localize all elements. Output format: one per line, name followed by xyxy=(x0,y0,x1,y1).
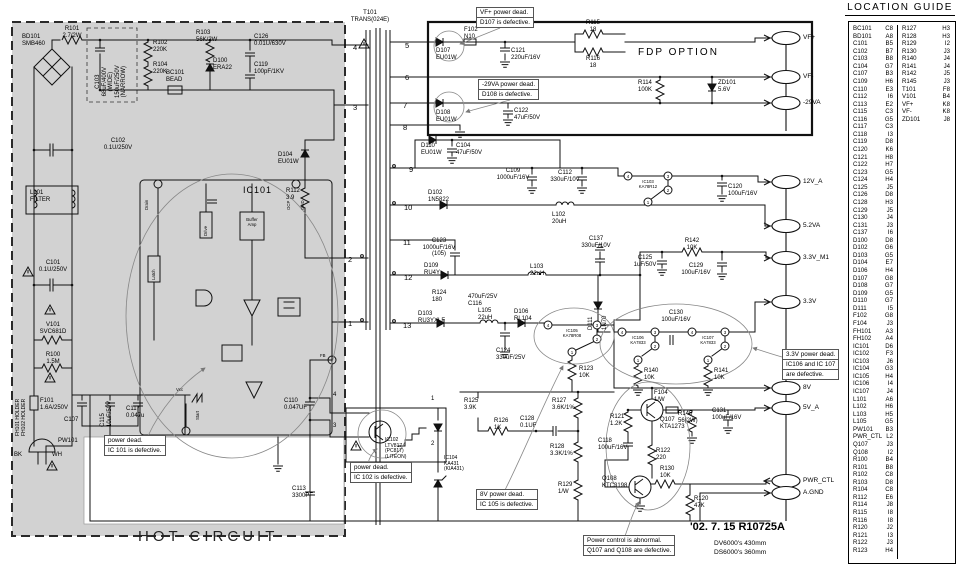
location-guide-row: C126D8 xyxy=(849,191,897,199)
label-r126: R126 1K xyxy=(494,418,508,431)
label-d106: D106 RL104 xyxy=(514,309,532,322)
ref-designator: R116 xyxy=(853,517,867,525)
location-guide-row: C116G5 xyxy=(849,116,897,124)
ref-designator: C103 xyxy=(853,55,868,63)
label-r101: R101 2.7/2W xyxy=(58,26,86,39)
location-guide-row: IC106I4 xyxy=(849,380,897,388)
callout-ic102: power dead.IC 102 is defective. xyxy=(350,463,412,483)
ref-designator: D110 xyxy=(853,297,867,305)
label-c116: 470uF/25V C116 xyxy=(468,294,497,307)
label-ic101-ocp: OCP xyxy=(287,201,292,210)
location-guide-row: C118I3 xyxy=(849,131,897,139)
location-guide-row: C102B7 xyxy=(849,48,897,56)
label-r130: R130 10K xyxy=(660,466,674,479)
t101-pin-6: 6 xyxy=(405,73,409,82)
grid-location: I3 xyxy=(888,532,893,540)
grid-location: J4 xyxy=(887,388,893,396)
ref-designator: D102 xyxy=(853,244,868,252)
ref-designator: C120 xyxy=(853,146,868,154)
grid-location: D8 xyxy=(885,479,893,487)
location-guide-row: C120K6 xyxy=(849,146,897,154)
ref-designator: L103 xyxy=(853,411,867,419)
hot-circuit-title: HOT CIRCUIT xyxy=(138,534,278,541)
location-guide-row: D103G5 xyxy=(849,252,897,260)
label-c110: C110 0.047UF xyxy=(284,398,307,411)
grid-location: B3 xyxy=(886,70,893,78)
label-c129: C129 100uF/16V xyxy=(678,263,714,276)
ref-designator: R130 xyxy=(902,48,917,56)
ref-designator: VF+ xyxy=(902,101,913,109)
location-guide-row: R115I8 xyxy=(849,509,897,517)
callout-line: D108 is defective. xyxy=(478,89,539,100)
label-r124: R124 180 xyxy=(432,290,446,303)
output-5v-a: 5V_A xyxy=(803,404,819,411)
grid-location: J3 xyxy=(887,320,893,328)
location-guide-row: R145J3 xyxy=(898,78,954,86)
ref-designator: R140 xyxy=(902,55,917,63)
grid-location: B4 xyxy=(886,456,893,464)
location-guide-row: D109G5 xyxy=(849,290,897,298)
grid-location: L2 xyxy=(886,433,893,441)
location-guide-col1: BC101C8BD101A8C101B5C102B7C103B8C104G7C1… xyxy=(849,25,897,559)
grid-location: G5 xyxy=(885,252,893,260)
grid-location: J4 xyxy=(944,63,950,71)
t101-pin-8: 8 xyxy=(403,123,407,132)
label-d107: D107 EU01W xyxy=(436,48,457,61)
callout-line: IC 101 is defective. xyxy=(104,445,166,456)
grid-location: C8 xyxy=(885,471,893,479)
ref-designator: R129 xyxy=(902,40,917,48)
grid-location: J4 xyxy=(887,214,893,222)
location-guide-row: C115C3 xyxy=(849,108,897,116)
ref-designator: T101 xyxy=(902,86,916,94)
location-guide-row: C123G5 xyxy=(849,169,897,177)
output-pwr-ctl: PWR_CTL xyxy=(803,477,834,484)
t101-pin-4: 4 xyxy=(353,43,357,52)
ref-designator: R102 xyxy=(853,471,868,479)
location-guide-row: R100B4 xyxy=(849,456,897,464)
label-r116: R116 18 xyxy=(582,56,604,69)
label-r129: R129 1/W xyxy=(558,482,572,495)
label-c101: C101 0.1U/250V xyxy=(30,260,76,273)
ref-designator: F102 xyxy=(853,312,867,320)
location-guide-row: D108G7 xyxy=(849,282,897,290)
location-guide-row: D111I5 xyxy=(849,305,897,313)
grid-location: A8 xyxy=(886,33,893,41)
output-3-3v: 3.3V xyxy=(803,298,816,305)
label-bd101: BD101 SMB460 xyxy=(22,34,45,47)
location-guide-row: C112I6 xyxy=(849,93,897,101)
location-guide-row: C131J3 xyxy=(849,222,897,230)
label-r127: R127 3.6K/1% xyxy=(552,398,575,411)
t101-pin-5: 5 xyxy=(405,41,409,50)
grid-location: I2 xyxy=(888,449,893,457)
grid-location: K8 xyxy=(943,108,950,116)
location-guide-table: BC101C8BD101A8C101B5C102B7C103B8C104G7C1… xyxy=(848,21,956,564)
ref-designator: C107 xyxy=(853,70,868,78)
location-guide-row: R102C8 xyxy=(849,471,897,479)
grid-location: J6 xyxy=(887,358,893,366)
callout-line: IC 105 is defective. xyxy=(476,499,538,510)
hot-circuit-region xyxy=(12,22,345,536)
ref-designator: R103 xyxy=(853,479,868,487)
label-v101: V101 SVC681D xyxy=(30,322,76,335)
grid-location: J2 xyxy=(887,524,893,532)
location-guide-row: R141J4 xyxy=(898,63,954,71)
grid-location: H5 xyxy=(885,411,893,419)
ref-designator: C110 xyxy=(853,86,867,94)
label-q108: Q108 KTC3198 xyxy=(602,476,627,489)
grid-location: G3 xyxy=(885,365,893,373)
label-c104: C104 47uF/50V xyxy=(456,143,482,156)
ref-designator: IC103 xyxy=(853,358,869,366)
output-a-gnd: A.GND xyxy=(803,489,824,496)
ref-designator: L105 xyxy=(853,418,867,426)
label-c112: C112 330uF/10V xyxy=(548,170,582,183)
label-r102: R102 220K xyxy=(153,40,167,53)
ref-designator: IC106 xyxy=(853,380,869,388)
ref-designator: IC101 xyxy=(853,343,869,351)
label-d110: D110 EU01W xyxy=(421,143,442,156)
location-guide-row: C117C3 xyxy=(849,123,897,131)
ref-designator: IC105 xyxy=(853,373,869,381)
location-guide-col2: R127H3R128H3R129I2R130J3R140J4R141J4R142… xyxy=(897,25,954,559)
ref-designator: IC107 xyxy=(853,388,869,396)
location-guide-row: L101A6 xyxy=(849,396,897,404)
label-r145: R145 56(2W) xyxy=(678,411,698,424)
location-guide: LOCATION GUIDE BC101C8BD101A8C101B5C102B… xyxy=(845,2,958,562)
ref-designator: R114 xyxy=(853,501,867,509)
grid-location: G8 xyxy=(885,275,893,283)
grid-location: C3 xyxy=(885,123,893,131)
label-c113: C113 3300PF xyxy=(292,486,313,499)
location-guide-row: IC107J4 xyxy=(849,388,897,396)
ref-designator: C128 xyxy=(853,199,868,207)
output-vf-minus: VF- xyxy=(803,73,813,80)
location-guide-row: D110G7 xyxy=(849,297,897,305)
grid-location: C3 xyxy=(885,108,893,116)
grid-location: G7 xyxy=(885,297,893,305)
ref-designator: Q107 xyxy=(853,441,868,449)
label-r141: R141 10K xyxy=(714,368,728,381)
location-guide-row: Q107J3 xyxy=(849,441,897,449)
label-d104: D104 EU01W xyxy=(278,152,299,165)
ic102-pin-2: 2 xyxy=(431,441,434,448)
location-guide-row: V101B4 xyxy=(898,93,954,101)
grid-location: J3 xyxy=(887,539,893,547)
ref-designator: C125 xyxy=(853,184,868,192)
grid-location: H4 xyxy=(885,373,893,381)
location-guide-row: C109H6 xyxy=(849,78,897,86)
label-f104: F104 1/W xyxy=(654,390,668,403)
ref-designator: C112 xyxy=(853,93,867,101)
ref-designator: IC102 xyxy=(853,350,869,358)
location-guide-row: IC102F3 xyxy=(849,350,897,358)
ref-designator: R123 xyxy=(853,547,868,555)
output-vf-plus: VF+ xyxy=(803,34,815,41)
t101-pin-13: 13 xyxy=(403,321,411,330)
location-guide-row: C119D8 xyxy=(849,138,897,146)
ref-designator: D111 xyxy=(853,305,867,313)
callout-line: Q107 and Q108 are defective. xyxy=(583,545,675,556)
label-r128: R128 3.3K/1% xyxy=(550,444,573,457)
grid-location: H4 xyxy=(885,267,893,275)
label-c120: C120 100uF/16V xyxy=(728,184,757,197)
grid-location: G8 xyxy=(885,312,893,320)
location-guide-row: C103B8 xyxy=(849,55,897,63)
location-guide-row: D106H4 xyxy=(849,267,897,275)
location-guide-row: D107G8 xyxy=(849,275,897,283)
label-ic101-vcc: Vcc xyxy=(176,388,183,393)
output-3-3v-m1: 3.3V_M1 xyxy=(803,254,829,261)
grid-location: H4 xyxy=(885,547,893,555)
ref-designator: PWR_CTL xyxy=(853,433,882,441)
ic102-pin-4: 4 xyxy=(333,392,336,399)
ref-designator: C121 xyxy=(853,154,868,162)
grid-location: E7 xyxy=(886,259,893,267)
grid-location: J5 xyxy=(887,184,893,192)
t101-pin-11: 11 xyxy=(403,238,411,247)
location-guide-row: F102G8 xyxy=(849,312,897,320)
ref-designator: R120 xyxy=(853,524,868,532)
label-r112: R112 3.9 xyxy=(286,188,300,201)
ref-designator: C115 xyxy=(853,108,867,116)
grid-location: J3 xyxy=(944,48,950,56)
ref-designator: Q108 xyxy=(853,449,868,457)
grid-location: D8 xyxy=(885,138,893,146)
ref-designator: R128 xyxy=(902,33,917,41)
ref-designator: D104 xyxy=(853,259,868,267)
grid-location: E6 xyxy=(886,494,893,502)
label-d100: D100 ERA22 xyxy=(213,58,232,71)
grid-location: G5 xyxy=(885,116,893,124)
t101-pin-2: 2 xyxy=(348,255,352,264)
label-ic101-latch: Latch xyxy=(152,269,157,280)
ref-designator: C123 xyxy=(853,169,868,177)
location-guide-row: C129J5 xyxy=(849,207,897,215)
grid-location: G5 xyxy=(885,418,893,426)
label-l103: L103 22uH xyxy=(530,264,544,277)
ref-designator: C113 xyxy=(853,101,867,109)
label-c131: C131 100uF/16V xyxy=(712,408,741,421)
ref-designator: V101 xyxy=(902,93,916,101)
location-guide-row: L102H6 xyxy=(849,403,897,411)
grid-location: B4 xyxy=(943,93,950,101)
ref-designator: R141 xyxy=(902,63,917,71)
label-r120: R120 47K xyxy=(694,496,708,509)
grid-location: E3 xyxy=(886,86,893,94)
ref-designator: D106 xyxy=(853,267,868,275)
t101-pin-7: 7 xyxy=(403,101,407,110)
label-ic105: IC105 KA78R08 xyxy=(558,329,586,339)
label-r114: R114 100K xyxy=(638,80,652,93)
grid-location: B8 xyxy=(886,464,893,472)
ref-designator: BD101 xyxy=(853,33,872,41)
ref-designator: ZD101 xyxy=(902,116,920,124)
location-guide-row: R114J8 xyxy=(849,501,897,509)
location-guide-row: C101B5 xyxy=(849,40,897,48)
label-c130: C130 100uF/16V xyxy=(658,310,694,323)
ref-designator: C119 xyxy=(853,138,867,146)
t101-pin-10: 10 xyxy=(404,203,412,212)
ref-designator: R101 xyxy=(853,464,868,472)
label-bc101: BC101 BEAD xyxy=(166,70,184,83)
location-guide-row: L105G5 xyxy=(849,418,897,426)
location-guide-row: T101F8 xyxy=(898,86,954,94)
ref-designator: C101 xyxy=(853,40,868,48)
fdp-option-title: FDP OPTION xyxy=(638,50,719,57)
location-guide-row: C137I6 xyxy=(849,229,897,237)
grid-location: D6 xyxy=(885,343,893,351)
ref-designator: R100 xyxy=(853,456,868,464)
ic102-pin-1: 1 xyxy=(431,396,434,403)
ref-designator: R121 xyxy=(853,532,868,540)
grid-location: G5 xyxy=(885,290,893,298)
callout-8v: 8V power dead.IC 105 is defective. xyxy=(476,490,538,510)
ref-designator: C137 xyxy=(853,229,868,237)
grid-location: H6 xyxy=(885,78,893,86)
label-ic104: IC104 KA431 (KIA431) xyxy=(444,456,464,473)
location-guide-row: PWR_CTLL2 xyxy=(849,433,897,441)
grid-location: H4 xyxy=(885,176,893,184)
grid-location: J5 xyxy=(944,70,950,78)
label-c124: C124 330uF/25V xyxy=(496,348,525,361)
location-guide-row: R104C8 xyxy=(849,486,897,494)
grid-location: I2 xyxy=(945,40,950,48)
ref-designator: L102 xyxy=(853,403,867,411)
location-guide-row: Q108I2 xyxy=(849,449,897,457)
grid-location: B3 xyxy=(886,426,893,434)
ref-designator: VF- xyxy=(902,108,912,116)
ref-designator: C109 xyxy=(853,78,868,86)
label-ic101-buffer: Buffer Amp xyxy=(241,218,263,228)
location-guide-row: FH101A3 xyxy=(849,328,897,336)
grid-location: I4 xyxy=(888,380,893,388)
label-l102: L102 20uH xyxy=(552,212,566,225)
label-r142: R142 10K xyxy=(680,238,704,251)
grid-location: H6 xyxy=(885,403,893,411)
location-guide-row: C121H8 xyxy=(849,154,897,162)
label-ic101-fb: FB xyxy=(320,354,326,359)
location-guide-row: C104G7 xyxy=(849,63,897,71)
location-guide-row: R103D8 xyxy=(849,479,897,487)
location-guide-row: C130J4 xyxy=(849,214,897,222)
location-guide-title: LOCATION GUIDE xyxy=(845,2,955,16)
ref-designator: R122 xyxy=(853,539,868,547)
ref-designator: D109 xyxy=(853,290,868,298)
t101-pin-3: 3 xyxy=(353,103,357,112)
label-ic101-drain: Drain xyxy=(145,200,150,210)
location-guide-row: ZD101J8 xyxy=(898,116,954,124)
label-c107: C107 xyxy=(64,417,78,424)
label-r125: R125 3.9K xyxy=(464,398,478,411)
location-guide-row: R140J4 xyxy=(898,55,954,63)
label-d103: D103 RU3YXLF xyxy=(418,311,445,324)
grid-location: H8 xyxy=(885,154,893,162)
label-t101: T101 TRANS(024E) xyxy=(348,10,392,23)
ref-designator: C124 xyxy=(853,176,868,184)
ref-designator: R142 xyxy=(902,70,917,78)
callout-line: IC 102 is defective. xyxy=(350,472,412,483)
t101-pin-12: 12 xyxy=(404,273,412,282)
grid-location: C8 xyxy=(885,25,893,33)
grid-location: D8 xyxy=(885,237,893,245)
location-guide-row: VF+K8 xyxy=(898,101,954,109)
label-l105: L105 22uH xyxy=(478,308,492,321)
label-ic101-drive: Drive xyxy=(204,226,209,236)
output-neg29va: -29VA xyxy=(803,99,821,106)
location-guide-row: IC103J6 xyxy=(849,358,897,366)
label-ic107: IC107 KA7833 xyxy=(696,336,720,346)
label-wh: WH xyxy=(52,452,62,459)
label-d109: D109 RU4Y xyxy=(424,263,440,276)
grid-location: B5 xyxy=(886,40,893,48)
ref-designator: R112 xyxy=(853,494,867,502)
label-r140: R140 10K xyxy=(644,368,658,381)
grid-location: I6 xyxy=(888,93,893,101)
label-r121: R121 1.2K xyxy=(610,414,624,427)
grid-location: I3 xyxy=(888,131,893,139)
ref-designator: C102 xyxy=(853,48,868,56)
callout-3-3v: 3.3V power dead.IC106 and IC 107are defe… xyxy=(782,350,839,380)
note-ds6000: DS6000's 360mm xyxy=(714,549,766,556)
callout-line: D107 is defective. xyxy=(476,17,534,28)
ref-designator: C126 xyxy=(853,191,868,199)
grid-location: A3 xyxy=(886,328,893,336)
ref-designator: D107 xyxy=(853,275,868,283)
callout-line: are defective. xyxy=(782,369,839,380)
label-d102: D102 1N5822 xyxy=(428,190,449,203)
callout-power-control: Power control is abnormal.Q107 and Q108 … xyxy=(583,536,675,556)
location-guide-row: R123H4 xyxy=(849,547,897,555)
ref-designator: L101 xyxy=(853,396,867,404)
ref-designator: FH101 xyxy=(853,328,871,336)
location-guide-row: R127H3 xyxy=(898,25,954,33)
location-guide-row: R116I8 xyxy=(849,517,897,525)
location-guide-row: C125J5 xyxy=(849,184,897,192)
grid-location: J8 xyxy=(944,116,950,124)
ref-designator: C118 xyxy=(853,131,867,139)
location-guide-row: R129I2 xyxy=(898,40,954,48)
label-r122: R122 220 xyxy=(656,448,670,461)
callout-ic101: power dead.IC 101 is defective. xyxy=(104,436,166,456)
pin-numbers: 4 3 2 1 5 6 7 8 9 10 11 12 13 xyxy=(348,41,413,330)
label-c119: C119 100pF/1KV xyxy=(254,62,284,75)
grid-location: K6 xyxy=(886,146,893,154)
ref-designator: F104 xyxy=(853,320,867,328)
label-c117: C117 0.047u xyxy=(126,406,144,419)
label-l101: L101 FILTER xyxy=(30,190,50,203)
location-guide-row: BC101C8 xyxy=(849,25,897,33)
grid-location: G6 xyxy=(885,244,893,252)
label-c126: C126 0.01U/630V xyxy=(254,34,286,47)
grid-location: G5 xyxy=(885,169,893,177)
grid-location: H7 xyxy=(885,161,893,169)
label-c121: C121 220uF/16V xyxy=(511,48,540,61)
ref-designator: C130 xyxy=(853,214,868,222)
location-guide-row: R112E6 xyxy=(849,494,897,502)
location-guide-row: BD101A8 xyxy=(849,33,897,41)
location-guide-row: IC104G3 xyxy=(849,365,897,373)
location-guide-row: IC105H4 xyxy=(849,373,897,381)
label-c115: C115 10uF/50V xyxy=(100,401,113,427)
ref-designator: R115 xyxy=(853,509,867,517)
callout-neg29va: -29VA power dead.D108 is defective. xyxy=(478,80,539,100)
ref-designator: FH102 xyxy=(853,335,871,343)
location-guide-row: VF-K8 xyxy=(898,108,954,116)
output-connectors xyxy=(764,31,800,521)
ref-designator: D103 xyxy=(853,252,868,260)
